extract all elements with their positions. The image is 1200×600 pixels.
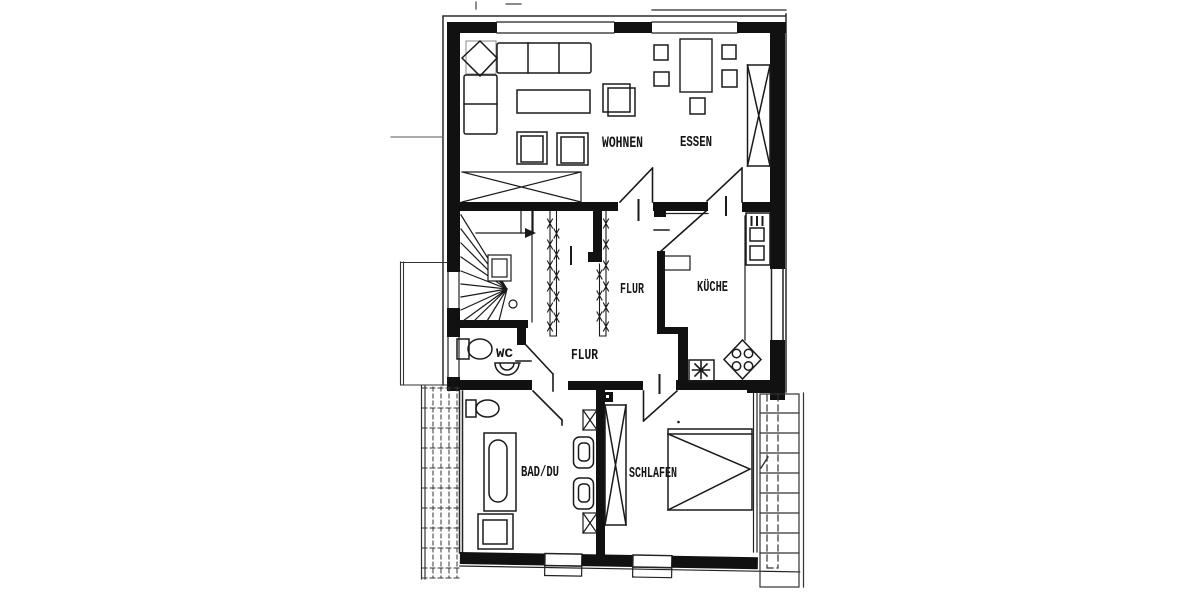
svg-text:WOHNEN: WOHNEN [602,134,643,152]
svg-text:ESSEN: ESSEN [680,134,712,151]
svg-text:BAD/DU: BAD/DU [521,464,559,481]
svg-text:FLUR: FLUR [620,281,644,298]
svg-text:SCHLAFEN: SCHLAFEN [629,465,677,482]
svg-text:WC: WC [496,346,513,361]
svg-text:KÜCHE: KÜCHE [697,279,728,296]
svg-text:FLUR: FLUR [571,347,598,364]
